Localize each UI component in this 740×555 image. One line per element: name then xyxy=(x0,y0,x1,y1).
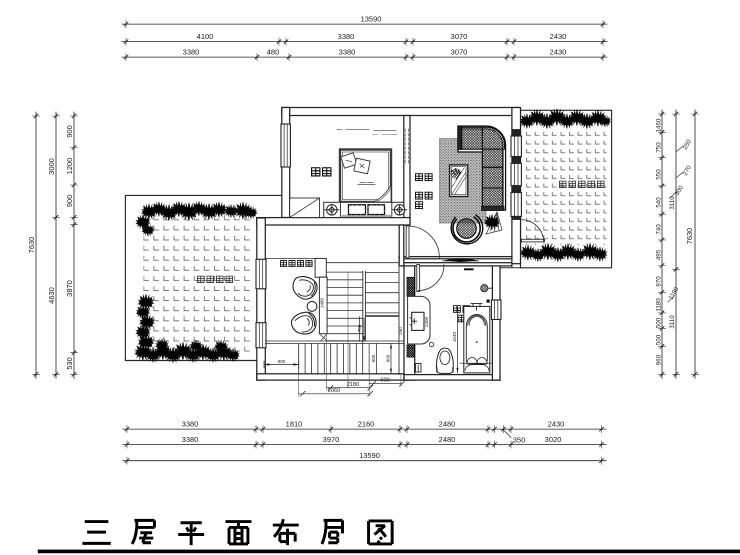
svg-text:3070: 3070 xyxy=(451,32,468,41)
svg-text:2430: 2430 xyxy=(550,32,567,41)
svg-text:1180: 1180 xyxy=(656,298,663,312)
svg-text:1400: 1400 xyxy=(424,316,429,327)
svg-text:3110: 3110 xyxy=(669,315,676,329)
svg-text:7630: 7630 xyxy=(685,228,694,245)
svg-text:7630: 7630 xyxy=(27,237,36,254)
svg-text:13590: 13590 xyxy=(361,15,382,24)
svg-text:500: 500 xyxy=(656,317,663,328)
svg-text:740: 740 xyxy=(656,224,663,235)
svg-text:350: 350 xyxy=(513,436,526,445)
svg-text:3870: 3870 xyxy=(65,280,74,297)
svg-text:2430: 2430 xyxy=(550,48,567,57)
svg-text:3000: 3000 xyxy=(47,158,56,175)
svg-text:150: 150 xyxy=(398,327,403,335)
svg-text:1460: 1460 xyxy=(656,118,663,132)
svg-text:600: 600 xyxy=(380,378,389,384)
svg-text:2480: 2480 xyxy=(439,435,456,444)
svg-text:3380: 3380 xyxy=(182,435,199,444)
svg-text:2060: 2060 xyxy=(328,388,340,394)
svg-text:3380: 3380 xyxy=(182,420,199,429)
svg-text:900: 900 xyxy=(65,125,74,138)
svg-text:495: 495 xyxy=(656,249,663,260)
svg-text:500: 500 xyxy=(656,334,663,345)
svg-text:900: 900 xyxy=(386,354,391,362)
svg-text:4100: 4100 xyxy=(197,32,214,41)
svg-text:13590: 13590 xyxy=(359,451,380,460)
svg-text:540: 540 xyxy=(656,197,663,208)
svg-text:3380: 3380 xyxy=(183,48,200,57)
svg-text:3970: 3970 xyxy=(323,435,340,444)
svg-text:550: 550 xyxy=(656,169,663,180)
svg-text:2480: 2480 xyxy=(439,420,456,429)
svg-text:530: 530 xyxy=(65,357,74,370)
svg-text:2180: 2180 xyxy=(347,382,359,388)
svg-text:480: 480 xyxy=(267,48,280,57)
svg-text:3380: 3380 xyxy=(339,48,356,57)
svg-text:750: 750 xyxy=(656,142,663,153)
svg-text:3110: 3110 xyxy=(669,196,676,210)
svg-text:3380: 3380 xyxy=(338,32,355,41)
svg-text:800: 800 xyxy=(278,359,286,364)
svg-text:780: 780 xyxy=(357,324,362,332)
svg-text:1540: 1540 xyxy=(452,331,457,342)
svg-text:1480: 1480 xyxy=(320,297,325,308)
svg-text:2160: 2160 xyxy=(358,420,375,429)
svg-text:960: 960 xyxy=(656,354,663,365)
svg-text:3020: 3020 xyxy=(545,435,562,444)
svg-text:4630: 4630 xyxy=(47,287,56,304)
svg-text:1200: 1200 xyxy=(65,158,74,175)
svg-text:905: 905 xyxy=(371,354,376,362)
svg-text:1810: 1810 xyxy=(286,420,303,429)
svg-text:900: 900 xyxy=(65,195,74,208)
svg-text:2430: 2430 xyxy=(548,420,565,429)
svg-text:3070: 3070 xyxy=(451,48,468,57)
svg-text:970: 970 xyxy=(656,276,663,287)
